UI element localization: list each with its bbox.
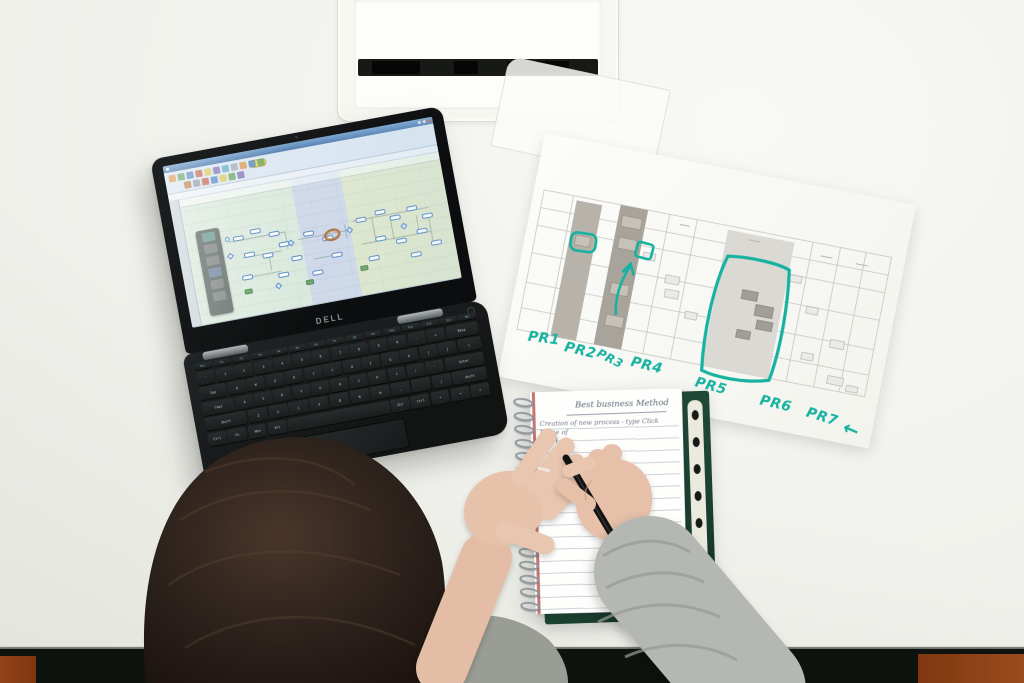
key-label: F8 [352,336,356,340]
keyboard-key: A [234,394,254,411]
key-label: ◂ [439,395,442,399]
toolbar-icon [219,174,227,182]
key-label: Y [331,368,334,372]
key-label: F4 [277,350,281,354]
binding-hole [692,410,699,420]
key-label: ▾ [459,392,462,396]
key-label: Win [254,429,261,434]
palette-shape-icon [210,279,224,290]
key-label: F7 [333,340,337,344]
key-label: M [379,391,382,395]
key-label: Bksp [458,328,467,333]
keyboard-key: N [349,388,370,405]
key-label: Z [257,413,260,417]
keyboard-key: M [370,384,391,401]
keyboard-key: Ctrl [410,392,431,409]
key-label: E [274,379,277,383]
model-label: Latitude [221,474,234,480]
floor-left-corner [0,656,36,683]
keyboard-key: R [284,369,304,386]
key-label: W [254,382,257,386]
maximize-icon [422,120,425,123]
minimize-icon [418,121,421,124]
key-label: T [312,372,315,376]
webcam-icon [295,135,298,138]
keyboard-key: ` [196,369,216,386]
keyboard-key: C [288,399,309,416]
laptop-screen [163,117,462,328]
key-label: S [262,397,265,401]
keyboard-key: 1 [215,366,235,383]
keyboard-key: Alt [267,419,288,436]
toolbar-icon [257,158,265,166]
keyboard-key: 7 [330,344,350,361]
keyboard-key: X [268,403,289,420]
below-desk-shadow [0,647,1024,683]
key-label: F6 [314,343,318,347]
toolbar-icon [237,171,245,179]
keyboard-key: V [308,395,329,412]
key-label: I [369,361,372,365]
keyboard-key: . [410,377,431,394]
keyboard-key: Ctrl [207,430,228,447]
keyboard-key: 2 [234,362,254,379]
keyboard-key: [ [418,344,438,361]
keyboard-key: K [368,369,388,386]
toolbar-icon [177,173,185,181]
notebook-page: Best business Method Creation of new pro… [530,388,688,614]
key-label: 0 [396,340,399,344]
keyboard-key: 5 [291,351,311,368]
key-label: F3 [258,354,262,358]
keyboard-key: ▾ [450,385,471,402]
handwritten-note: Level [540,438,558,446]
key-label: P [408,354,411,358]
toolbar-icon [195,170,203,178]
key-label: F11 [408,325,414,329]
keyboard-key: 4 [272,355,292,372]
keyboard-key: 6 [311,348,331,365]
key-label: 1 [224,372,227,376]
keyboard-key: I [361,354,381,371]
toolbar-icon [184,181,192,189]
keyboard-key: , [390,380,411,397]
key-label: F2 [239,357,243,361]
key-label: A [243,400,246,404]
toolbar-icon [186,171,194,179]
slot-segment [454,61,478,74]
key-label: F [300,389,303,393]
handwritten-title: Best business Method [575,398,654,410]
binding-hole [694,491,701,501]
key-label: - [415,337,418,341]
keyboard-key: 0 [387,334,407,351]
key-label: Ins [446,318,452,322]
keyboard-key: H [329,376,349,393]
key-label: Ctrl [213,436,222,441]
key-label: ' [433,365,436,369]
handwritten-note: Name of [540,429,568,437]
key-label: R [293,375,296,379]
key-label: F12 [427,322,433,326]
palette-shape-icon [205,255,219,266]
keyboard-key: Z [247,407,268,424]
toolbar-icon [204,168,212,176]
toolbar-icon [193,179,201,187]
key-label: Alt [397,402,404,407]
key-label: K [376,375,379,379]
key-label: O [389,357,392,361]
key-label: 9 [377,344,380,348]
key-label: 3 [262,365,265,369]
keyboard-key: ] [437,340,457,357]
keyboard-key: ' [425,358,445,375]
key-label: Fn [235,433,240,438]
keyboard-key: - [406,330,426,347]
toolbar-icon [248,160,256,168]
toolbar-icon [228,173,236,181]
key-label: J [357,379,360,383]
key-label: F10 [389,329,395,333]
key-label: 6 [319,354,322,358]
keyboard-key: O [380,351,400,368]
toolbar-icon [230,163,238,171]
lane-pr5 [702,230,795,378]
keyboard-key: = [426,327,446,344]
key-label: G [319,386,322,390]
keyboard-key: / [431,373,452,390]
key-label: ▸ [479,388,482,392]
keyboard-key: L [387,365,407,382]
key-label: U [350,364,353,368]
lane-pr1 [550,200,602,340]
key-label: Alt [274,425,281,430]
keyboard-key: F [291,383,311,400]
key-label: F5 [296,347,300,351]
keyboard-key: S [253,390,273,407]
key-label: B [338,398,341,402]
keyboard-key: ; [406,362,426,379]
key-label: Caps [214,404,223,409]
dell-laptop: DELL EscF1F2F3F4F5F6F7F8F9F10F11F12InsDe… [150,106,502,488]
key-label: / [440,379,443,383]
key-label: 2 [243,369,246,373]
hair-strands [168,458,415,648]
keyboard-key: G [310,380,330,397]
key-label: Del [464,315,470,319]
keyboard-key: P [399,347,419,364]
key-label: Esc [200,364,206,368]
keyboard-key: Q [226,379,246,396]
spiral-notebook: Best business Method Creation of new pro… [503,386,726,631]
key-label: C [297,406,300,410]
keyboard-key: ▸ [470,381,491,398]
keyboard-key: ◂ [430,389,451,406]
palette-shape-icon [203,243,217,254]
key-label: X [277,410,280,414]
key-label: ; [414,368,417,372]
keyboard-key: Y [322,362,342,379]
desk-scene: PR1PR2PR3PR4PR5PR6PR7 ← [0,0,1024,683]
key-label: Tab [210,390,217,395]
key-label: . [420,383,423,387]
keyboard-key: W [246,376,266,393]
toolbar-icon [221,165,229,173]
key-label: Enter [459,359,469,365]
close-icon [427,119,430,122]
keyboard-key: E [265,372,285,389]
key-label: N [359,394,362,398]
key-label: 8 [358,347,361,351]
key-label: , [399,387,402,391]
binding-hole [693,464,700,474]
app-icon [166,167,169,170]
key-label: V [318,402,321,406]
toolbar-icon [213,166,221,174]
slot-segment [372,61,420,74]
key-label: D [281,393,284,397]
key-label: Q [235,386,238,390]
binding-hole [693,437,700,447]
key-label: [ [427,350,430,354]
key-label: Shift [464,373,474,379]
floor-right-corner [918,654,1024,683]
keyboard-key: T [303,365,323,382]
toolbar-icon [201,177,209,185]
palette-shape-icon [212,290,226,301]
key-label: 7 [339,351,342,355]
keyboard-key: 9 [368,337,388,354]
keyboard-key: D [272,387,292,404]
key-label: F9 [371,333,375,337]
palette-shape-icon [201,231,215,242]
key-label: H [338,382,341,386]
keyboard-key: Alt [390,396,411,413]
key-label: F1 [220,361,224,365]
keyboard-key: 8 [349,341,369,358]
keyboard-key: Win [247,423,268,440]
key-label: L [395,372,398,376]
binding-hole [695,518,702,528]
keyboard-key: 3 [253,359,273,376]
toolbar-icon [210,176,218,184]
key-label: ] [446,347,449,351]
desk-edge [0,646,1024,649]
toolbar-icon [239,161,247,169]
key-label: ` [204,376,207,380]
keyboard-key: U [341,358,361,375]
key-label: Ctrl [416,398,425,403]
keyboard-key: J [349,372,369,389]
key-label: \ [468,343,471,347]
toolbar-icon [168,174,176,182]
keyboard-key: B [329,392,350,409]
key-label: = [434,333,437,337]
keyboard-key: Fn [227,426,248,443]
binding-strip [687,400,709,605]
key-label: 4 [281,361,284,365]
palette-shape-icon [207,267,221,278]
key-label: Shift [221,418,231,424]
key-label: 5 [300,358,303,362]
